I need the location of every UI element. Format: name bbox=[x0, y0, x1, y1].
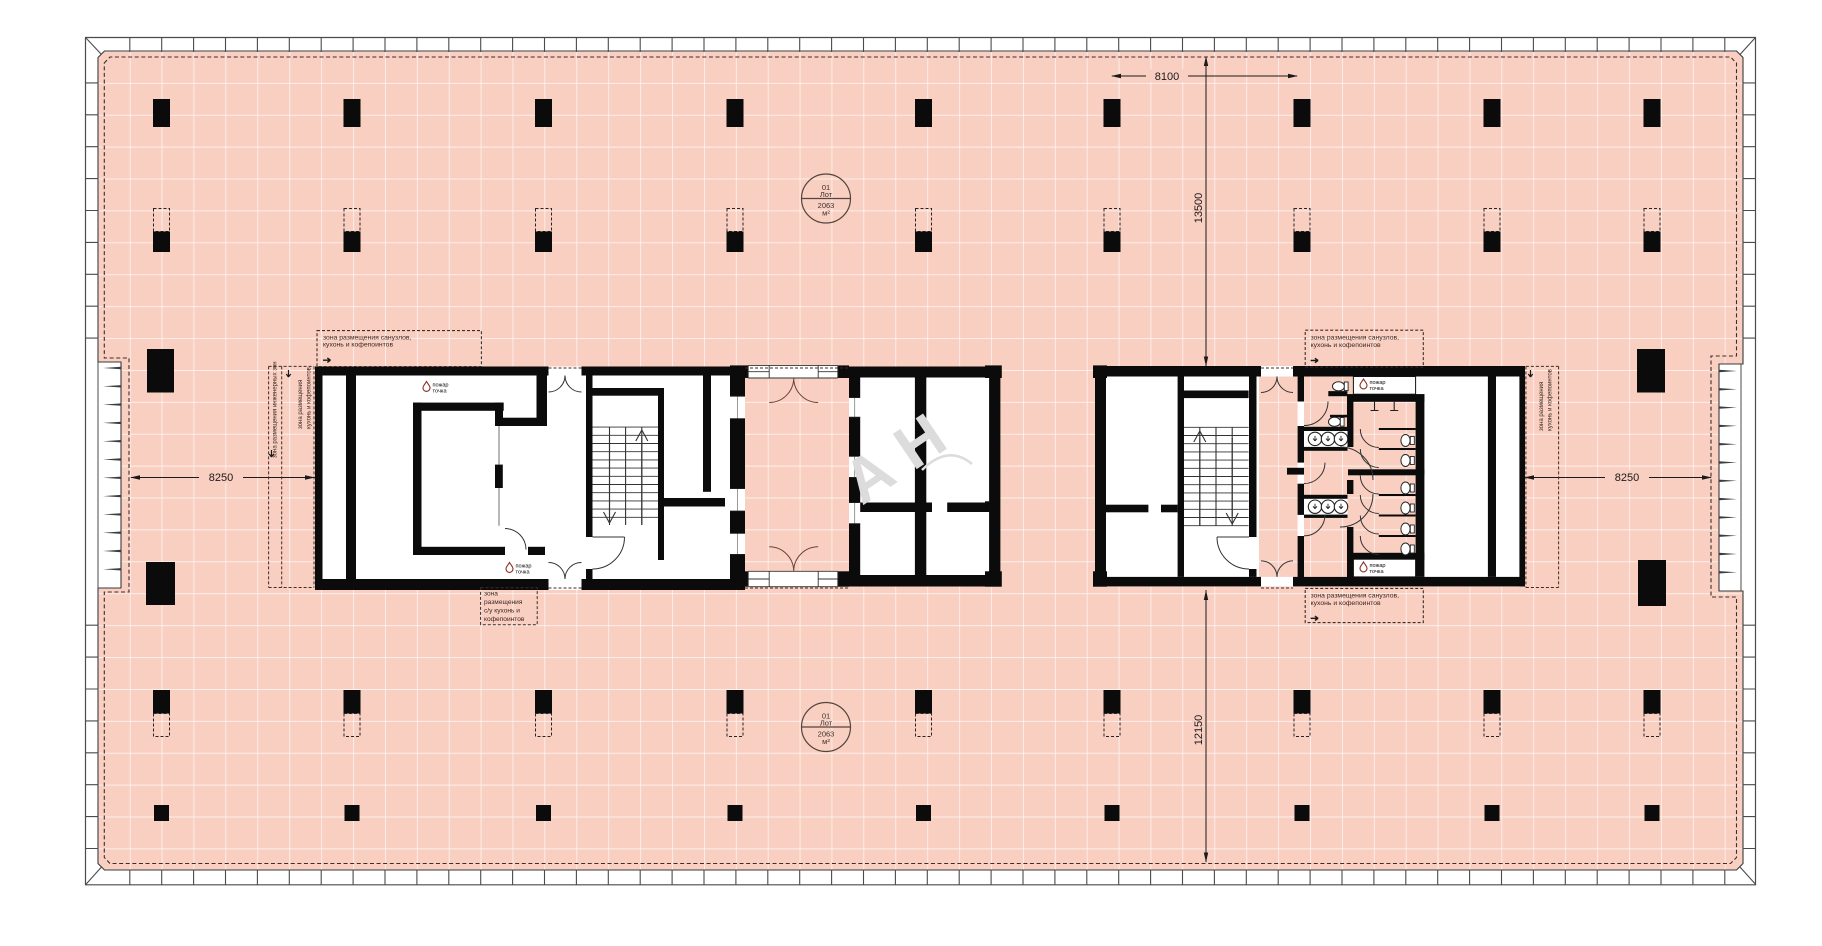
svg-text:кухонь и кофепоинтов: кухонь и кофепоинтов bbox=[1311, 600, 1381, 607]
svg-text:8250: 8250 bbox=[1615, 472, 1639, 484]
svg-text:точка: точка bbox=[516, 570, 531, 576]
svg-text:точка: точка bbox=[1370, 569, 1385, 575]
svg-text:зона размещения санузлов,: зона размещения санузлов, bbox=[1311, 335, 1400, 342]
svg-text:зона размещения: зона размещения bbox=[1539, 382, 1545, 431]
svg-text:кухонь и кофепоинтов: кухонь и кофепоинтов bbox=[307, 367, 313, 429]
svg-text:кухонь и кофепоинтов: кухонь и кофепоинтов bbox=[1311, 342, 1381, 349]
svg-text:кухонь и кофепоинтов: кухонь и кофепоинтов bbox=[1548, 369, 1554, 431]
svg-text:м²: м² bbox=[822, 737, 830, 746]
svg-text:с/у кухонь и: с/у кухонь и bbox=[484, 608, 520, 615]
svg-text:зона размещения санузлов,: зона размещения санузлов, bbox=[1311, 593, 1400, 600]
svg-text:8100: 8100 bbox=[1155, 71, 1179, 83]
svg-text:зона: зона bbox=[484, 590, 498, 597]
svg-text:Лот: Лот bbox=[820, 719, 833, 728]
svg-text:Лот: Лот bbox=[820, 190, 833, 199]
svg-text:точка: точка bbox=[433, 389, 448, 395]
svg-text:кухонь и кофепоинтов: кухонь и кофепоинтов bbox=[323, 342, 393, 349]
svg-text:размещения: размещения bbox=[484, 599, 523, 606]
svg-text:точка: точка bbox=[1370, 386, 1385, 392]
svg-text:кофепоинтов: кофепоинтов bbox=[484, 616, 525, 623]
svg-text:13500: 13500 bbox=[1193, 193, 1205, 224]
svg-text:зона размещения санузлов,: зона размещения санузлов, bbox=[323, 334, 412, 341]
svg-text:12150: 12150 bbox=[1193, 715, 1205, 746]
svg-text:м²: м² bbox=[822, 209, 830, 218]
svg-text:зона размещения: зона размещения bbox=[298, 380, 304, 429]
svg-text:8250: 8250 bbox=[209, 472, 233, 484]
svg-text:зона размещения инженерных зон: зона размещения инженерных зон bbox=[273, 361, 279, 458]
